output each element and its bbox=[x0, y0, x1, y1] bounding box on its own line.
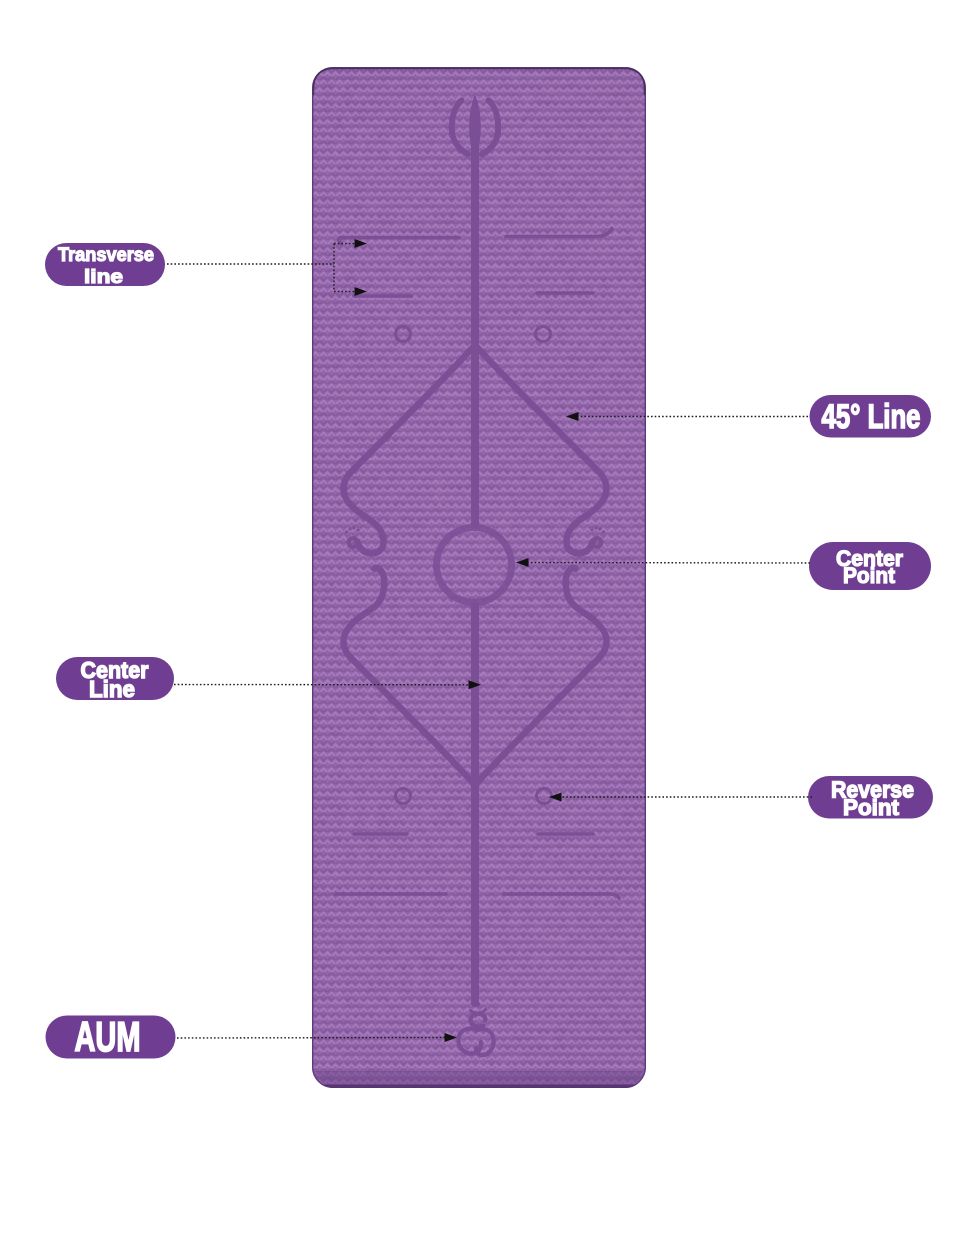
svg-text:45° Line: 45° Line bbox=[822, 398, 921, 436]
svg-text:AUM: AUM bbox=[75, 1013, 141, 1060]
svg-text:Transverse: Transverse bbox=[58, 245, 154, 266]
svg-text:Line: Line bbox=[89, 676, 135, 702]
svg-text:Point: Point bbox=[843, 795, 900, 820]
svg-text:line: line bbox=[84, 267, 123, 288]
svg-text:Point: Point bbox=[843, 563, 896, 588]
